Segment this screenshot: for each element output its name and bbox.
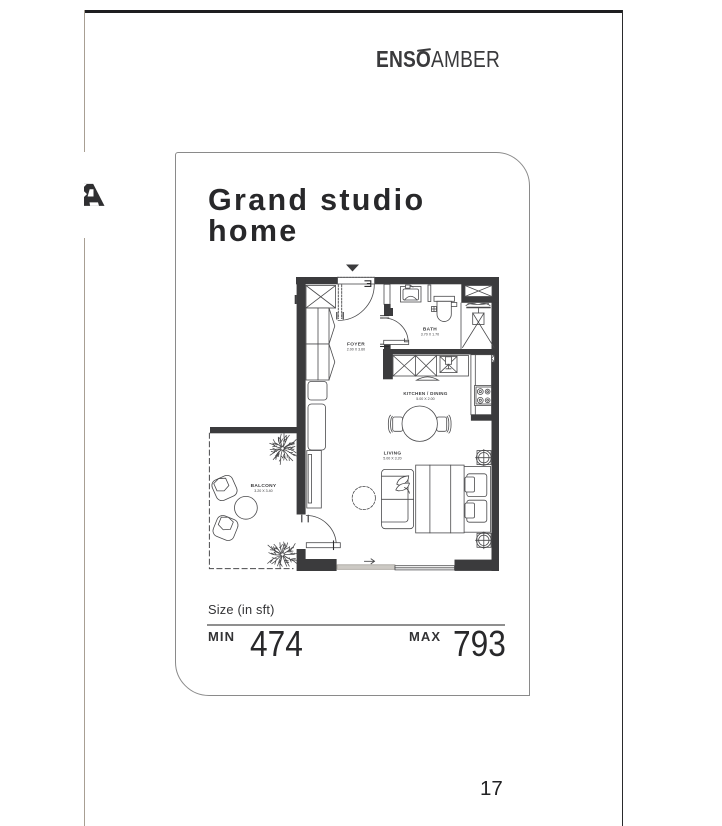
- svg-text:3.20 X 3.40: 3.20 X 3.40: [254, 489, 272, 493]
- svg-text:5.00 X 2.00: 5.00 X 2.00: [416, 397, 434, 401]
- svg-text:KITCHEN / DINING: KITCHEN / DINING: [403, 391, 447, 396]
- svg-text:5.00 X 3.20: 5.00 X 3.20: [383, 457, 401, 461]
- svg-text:2.00 X 3.60: 2.00 X 3.60: [347, 348, 365, 352]
- svg-text:3.70 X 1.70: 3.70 X 1.70: [421, 333, 439, 337]
